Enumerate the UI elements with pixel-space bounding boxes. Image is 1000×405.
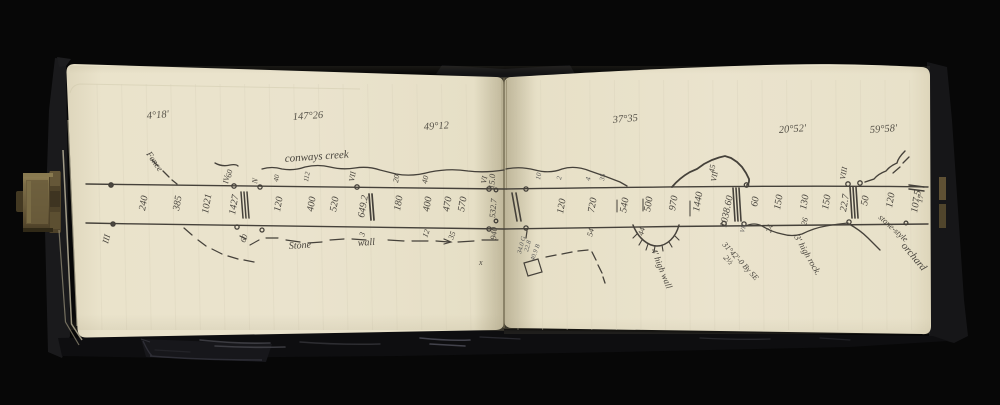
svg-text:20°52': 20°52' [778, 123, 807, 136]
svg-text:Stone: Stone [288, 239, 311, 252]
svg-text:x: x [478, 258, 483, 267]
svg-text:532.7: 532.7 [487, 198, 499, 219]
svg-text:20: 20 [391, 174, 401, 183]
svg-text:45: 45 [707, 164, 717, 173]
svg-text:37°35: 37°35 [611, 113, 638, 126]
svg-text:VII: VII [347, 170, 358, 182]
svg-text:940: 940 [488, 226, 499, 240]
svg-text:59°58': 59°58' [869, 123, 898, 136]
svg-text:4°18': 4°18' [146, 109, 170, 122]
svg-text:49°12: 49°12 [423, 120, 450, 133]
svg-text:147°26: 147°26 [292, 110, 324, 123]
svg-text:wall: wall [357, 237, 375, 249]
svg-text:60: 60 [749, 196, 762, 208]
svg-text:40: 40 [420, 175, 430, 184]
svg-text:50: 50 [859, 195, 872, 207]
